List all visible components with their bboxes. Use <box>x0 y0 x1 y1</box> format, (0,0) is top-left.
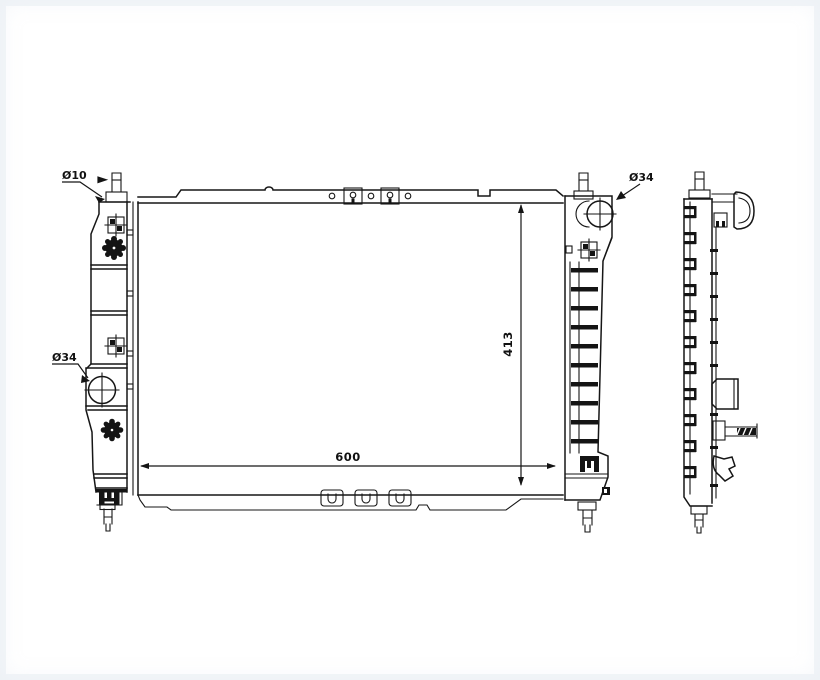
callout-port-label: Ø34 <box>52 351 77 364</box>
left-port <box>85 373 119 407</box>
bottom-clip-3 <box>389 490 411 506</box>
drawing-canvas: 600 413 Ø10 Ø34 Ø <box>0 0 820 680</box>
left-bracket-upper <box>105 214 127 236</box>
right-lower-bracket <box>565 456 610 495</box>
left-tank-top-pin <box>97 173 127 202</box>
callout-port-diameter: Ø34 <box>52 351 90 383</box>
dim-height-label: 413 <box>501 331 515 357</box>
left-bottom-pin <box>100 504 115 531</box>
dimension-width: 600 <box>140 450 556 469</box>
left-bracket-lower <box>105 335 127 357</box>
left-drain <box>97 492 122 505</box>
callout-filler-diameter: Ø34 <box>616 171 654 200</box>
side-top-pin <box>689 172 710 198</box>
dimensions: 600 413 Ø10 Ø34 Ø <box>52 169 654 486</box>
side-stud <box>713 421 757 440</box>
bottom-clip-2 <box>355 490 377 506</box>
core-bottom-rail <box>138 490 563 510</box>
right-bottom-pin <box>578 502 596 532</box>
side-view <box>684 172 757 533</box>
right-tank-top-pin <box>574 173 593 199</box>
left-star-upper <box>102 236 126 260</box>
right-bracket <box>566 239 600 261</box>
callout-pin-label: Ø10 <box>62 169 87 182</box>
left-star-lower <box>101 419 124 442</box>
core-top-rail <box>138 187 563 205</box>
callout-pin-diameter: Ø10 <box>62 169 105 203</box>
side-bottom-pin <box>691 506 707 533</box>
side-filler-neck <box>712 192 754 229</box>
filler-neck <box>576 198 616 230</box>
front-view <box>85 173 616 532</box>
radiator-technical-drawing: 600 413 Ø10 Ø34 Ø <box>0 0 820 680</box>
right-tank <box>565 173 616 532</box>
left-tank <box>85 173 138 531</box>
bottom-clip-1 <box>321 490 343 506</box>
dim-width-label: 600 <box>335 450 361 464</box>
dimension-height: 413 <box>501 204 524 486</box>
right-tank-ribs <box>570 262 598 453</box>
callout-filler-label: Ø34 <box>629 171 654 184</box>
